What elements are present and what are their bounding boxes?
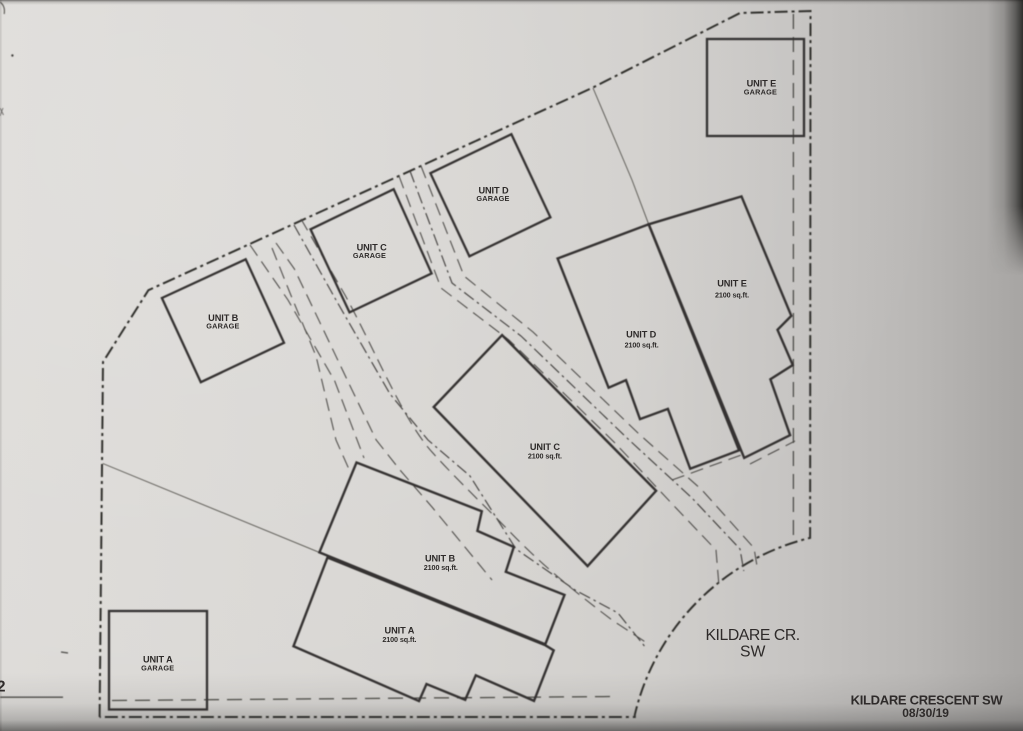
svg-text:GARAGE: GARAGE xyxy=(141,663,174,672)
svg-text:GARAGE: GARAGE xyxy=(744,88,777,97)
svg-text:GARAGE: GARAGE xyxy=(476,194,509,203)
svg-text:2: 2 xyxy=(0,679,5,696)
svg-text:KILDARE CR.: KILDARE CR. xyxy=(705,627,799,644)
svg-text:UNIT D: UNIT D xyxy=(626,330,656,340)
svg-text:2100 sq.ft.: 2100 sq.ft. xyxy=(382,635,416,644)
svg-text:GARAGE: GARAGE xyxy=(206,322,239,331)
svg-text:SW: SW xyxy=(740,644,766,661)
svg-text:UNIT C: UNIT C xyxy=(530,442,560,452)
svg-text:2100 sq.ft.: 2100 sq.ft. xyxy=(715,291,749,300)
svg-text:2100 sq.ft.: 2100 sq.ft. xyxy=(528,452,562,461)
svg-text:GARAGE: GARAGE xyxy=(353,251,386,260)
svg-text:2100 sq.ft.: 2100 sq.ft. xyxy=(625,341,659,350)
svg-text:08/30/19: 08/30/19 xyxy=(902,706,949,720)
svg-text:UNIT E: UNIT E xyxy=(717,279,747,289)
svg-text:2100 sq.ft.: 2100 sq.ft. xyxy=(424,563,458,572)
